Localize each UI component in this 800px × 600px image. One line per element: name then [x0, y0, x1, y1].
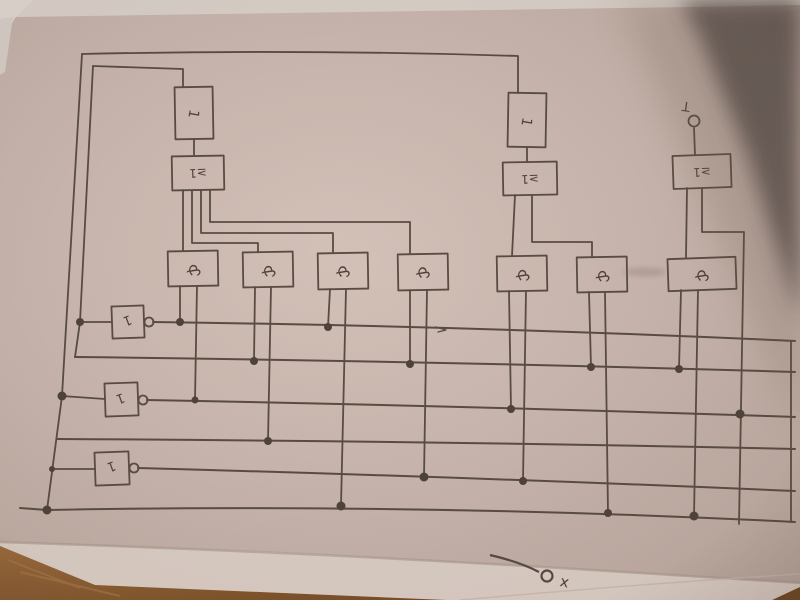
vignette — [0, 0, 800, 600]
photo-of-schematic: x 1 ≥1 1 ≥1 — [0, 0, 800, 600]
schematic-canvas: x 1 ≥1 1 ≥1 — [0, 0, 800, 600]
